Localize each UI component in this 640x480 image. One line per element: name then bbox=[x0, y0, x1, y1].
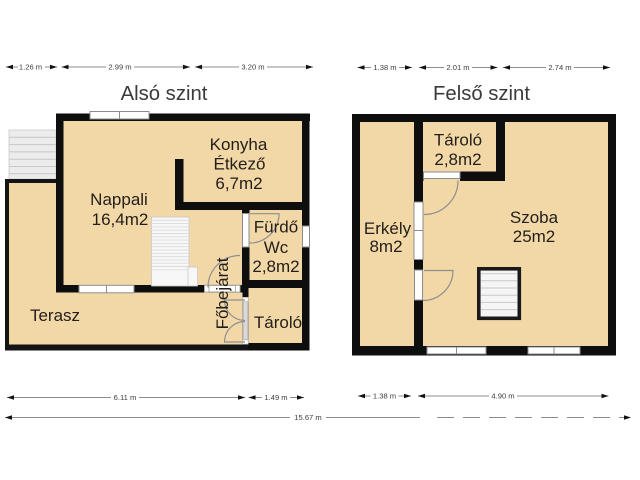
svg-text:Étkező: Étkező bbox=[214, 155, 266, 174]
svg-text:2.74 m: 2.74 m bbox=[548, 63, 571, 72]
svg-text:6.11 m: 6.11 m bbox=[114, 393, 137, 402]
svg-text:Alsó szint: Alsó szint bbox=[121, 83, 208, 105]
svg-text:1.38 m: 1.38 m bbox=[373, 63, 396, 72]
svg-text:8m2: 8m2 bbox=[369, 237, 402, 256]
svg-text:6,7m2: 6,7m2 bbox=[215, 174, 262, 193]
svg-text:1.26 m: 1.26 m bbox=[19, 63, 42, 72]
svg-text:Tároló: Tároló bbox=[254, 313, 302, 332]
svg-text:Felső szint: Felső szint bbox=[433, 83, 530, 105]
svg-text:2,8m2: 2,8m2 bbox=[252, 257, 299, 276]
svg-text:1.38 m: 1.38 m bbox=[373, 392, 396, 401]
svg-text:2.99 m: 2.99 m bbox=[108, 63, 131, 72]
svg-text:Fürdő: Fürdő bbox=[254, 218, 298, 237]
svg-text:Főbejárat: Főbejárat bbox=[213, 257, 232, 329]
svg-text:25m2: 25m2 bbox=[513, 227, 556, 246]
svg-text:Konyha: Konyha bbox=[210, 135, 268, 154]
svg-text:Terasz: Terasz bbox=[30, 306, 80, 325]
svg-text:16,4m2: 16,4m2 bbox=[92, 210, 149, 229]
svg-text:Erkély: Erkély bbox=[364, 219, 412, 238]
svg-text:15.67 m: 15.67 m bbox=[294, 413, 321, 422]
svg-text:2.01 m: 2.01 m bbox=[446, 63, 469, 72]
svg-text:Szoba: Szoba bbox=[510, 208, 559, 227]
svg-text:2,8m2: 2,8m2 bbox=[434, 150, 481, 169]
svg-text:Tároló: Tároló bbox=[434, 131, 482, 150]
svg-text:4.90 m: 4.90 m bbox=[491, 392, 514, 401]
svg-text:3.20 m: 3.20 m bbox=[241, 63, 264, 72]
svg-text:1.49 m: 1.49 m bbox=[264, 393, 287, 402]
svg-text:Wc: Wc bbox=[264, 238, 289, 257]
svg-text:Nappali: Nappali bbox=[90, 190, 148, 209]
